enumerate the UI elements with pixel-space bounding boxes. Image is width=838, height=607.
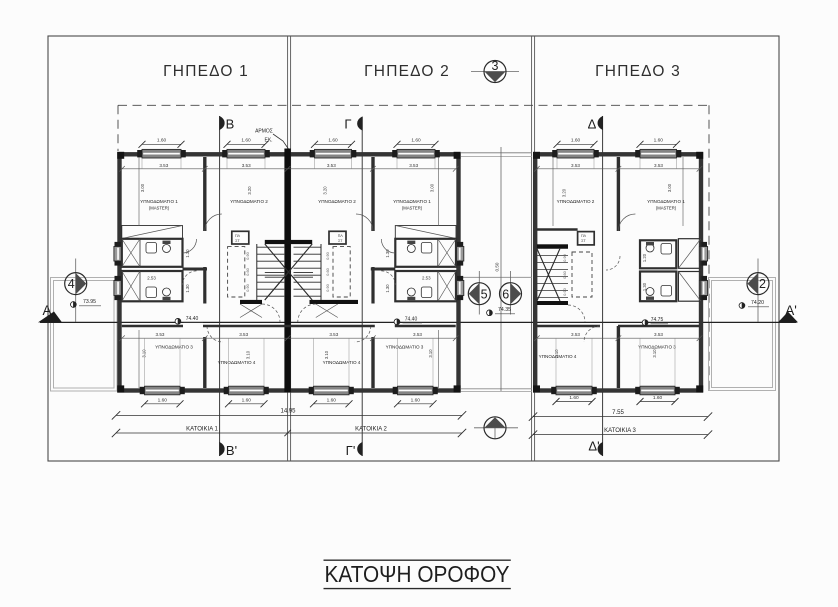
svg-text:ΓΗΠΕΔΟ 3: ΓΗΠΕΔΟ 3: [595, 63, 681, 80]
svg-text:3.53: 3.53: [327, 163, 336, 168]
svg-text:0.90: 0.90: [326, 252, 330, 259]
svg-text:3.53: 3.53: [239, 332, 248, 337]
svg-text:1.60: 1.60: [157, 137, 167, 143]
svg-text:0.90: 0.90: [563, 288, 567, 295]
svg-text:A': A': [785, 303, 797, 318]
svg-text:ΥΠΝΟΔΩΜΑΤΙΟ 4: ΥΠΝΟΔΩΜΑΤΙΟ 4: [323, 360, 361, 365]
svg-text:B': B': [226, 443, 237, 458]
svg-text:3.10: 3.10: [652, 349, 657, 358]
svg-text:ΥΠΝΟΔΩΜΑΤΙΟ 2: ΥΠΝΟΔΩΜΑΤΙΟ 2: [230, 199, 268, 204]
svg-text:1.60: 1.60: [569, 395, 579, 401]
svg-text:3.53: 3.53: [329, 332, 338, 337]
svg-text:1.60: 1.60: [654, 137, 664, 143]
svg-text:Δ': Δ': [588, 439, 599, 454]
svg-text:3.53: 3.53: [242, 163, 251, 168]
svg-text:6: 6: [502, 287, 509, 301]
svg-text:3.10: 3.10: [324, 350, 329, 359]
svg-text:1.60: 1.60: [653, 395, 663, 401]
svg-text:1.60: 1.60: [241, 137, 251, 143]
svg-text:2: 2: [759, 277, 766, 291]
svg-text:7.55: 7.55: [612, 410, 624, 416]
svg-text:Γ: Γ: [344, 117, 351, 132]
svg-text:ΥΠΝΟΔΩΜΑΤΙΟ 2: ΥΠΝΟΔΩΜΑΤΙΟ 2: [318, 199, 356, 204]
svg-text:B: B: [226, 117, 235, 132]
svg-text:ΥΠΝΟΔΩΜΑΤΙΟ 3: ΥΠΝΟΔΩΜΑΤΙΟ 3: [386, 345, 424, 350]
svg-text:Γ': Γ': [346, 443, 356, 458]
svg-text:3.53: 3.53: [571, 163, 580, 168]
svg-text:0.90: 0.90: [246, 252, 250, 259]
svg-text:1.60: 1.60: [411, 397, 421, 403]
svg-text:ΥΠΝΟΔΩΜΑΤΙΟ 3: ΥΠΝΟΔΩΜΑΤΙΟ 3: [155, 345, 193, 350]
svg-text:ΕΚ.: ΕΚ.: [265, 138, 273, 144]
svg-text:ΥΠΝΟΔΩΜΑΤΙΟ 1: ΥΠΝΟΔΩΜΑΤΙΟ 1: [647, 199, 685, 204]
svg-text:1.60: 1.60: [327, 397, 337, 403]
svg-text:74.35: 74.35: [498, 307, 511, 313]
svg-text:ΚΑΤΟΙΚΙΑ 3: ΚΑΤΟΙΚΙΑ 3: [604, 428, 636, 434]
svg-text:1.60: 1.60: [328, 137, 338, 143]
svg-text:3.20: 3.20: [247, 186, 252, 195]
svg-text:3.00: 3.00: [667, 183, 672, 192]
svg-text:3: 3: [492, 59, 499, 73]
svg-text:1.60: 1.60: [411, 137, 421, 143]
svg-text:3.10: 3.10: [428, 349, 433, 358]
svg-text:3.53: 3.53: [159, 163, 168, 168]
svg-text:3.53: 3.53: [413, 332, 422, 337]
svg-text:0.90: 0.90: [563, 254, 567, 261]
svg-text:3.10: 3.10: [142, 349, 147, 358]
svg-text:1.60: 1.60: [158, 397, 168, 403]
svg-text:ΥΠΝΟΔΩΜΑΤΙΟ 3: ΥΠΝΟΔΩΜΑΤΙΟ 3: [638, 345, 676, 350]
svg-text:5: 5: [481, 287, 488, 301]
svg-text:1.60: 1.60: [242, 397, 252, 403]
svg-text:A: A: [42, 303, 51, 318]
svg-text:ΠΛ: ΠΛ: [581, 234, 587, 238]
svg-text:ΠΛ: ΠΛ: [235, 234, 241, 238]
svg-text:0.50: 0.50: [495, 262, 500, 271]
svg-text:74.40: 74.40: [405, 316, 418, 322]
svg-text:74.20: 74.20: [751, 300, 764, 306]
svg-text:2.53: 2.53: [147, 275, 156, 280]
svg-text:3.00: 3.00: [140, 183, 145, 192]
svg-text:3.53: 3.53: [654, 163, 663, 168]
svg-text:3.20: 3.20: [562, 188, 567, 197]
svg-text:2.53: 2.53: [422, 275, 431, 280]
svg-text:3.53: 3.53: [156, 332, 165, 337]
svg-text:(MASTER): (MASTER): [402, 206, 423, 211]
svg-text:3.53: 3.53: [571, 332, 580, 337]
svg-text:1.30: 1.30: [185, 284, 190, 293]
svg-text:ΚΑΤΟΙΚΙΑ 1: ΚΑΤΟΙΚΙΑ 1: [186, 426, 218, 432]
svg-text:3.53: 3.53: [409, 163, 418, 168]
svg-text:3.10: 3.10: [554, 349, 559, 358]
svg-text:1.30: 1.30: [642, 282, 647, 291]
svg-text:ΚΑΤΟΨΗ ΟΡΟΦΟΥ: ΚΑΤΟΨΗ ΟΡΟΦΟΥ: [325, 561, 510, 587]
svg-text:ΠΛ: ΠΛ: [338, 234, 344, 238]
svg-text:1.30: 1.30: [185, 249, 190, 258]
svg-text:ΥΠΝΟΔΩΜΑΤΙΟ 1: ΥΠΝΟΔΩΜΑΤΙΟ 1: [393, 199, 431, 204]
svg-text:ΑΡΜΟΣ: ΑΡΜΟΣ: [255, 129, 273, 135]
svg-text:1.30: 1.30: [385, 249, 390, 258]
svg-text:ΥΠΝΟΔΩΜΑΤΙΟ 1: ΥΠΝΟΔΩΜΑΤΙΟ 1: [140, 199, 178, 204]
svg-text:Δ: Δ: [588, 117, 597, 132]
svg-text:ΚΑΤΟΙΚΙΑ 2: ΚΑΤΟΙΚΙΑ 2: [355, 426, 387, 432]
svg-text:3.10: 3.10: [246, 350, 251, 359]
svg-text:0.90: 0.90: [326, 284, 330, 291]
svg-text:1.30: 1.30: [385, 284, 390, 293]
svg-text:(MASTER): (MASTER): [149, 206, 170, 211]
svg-text:3.53: 3.53: [654, 332, 663, 337]
svg-text:ΓΗΠΕΔΟ 1: ΓΗΠΕΔΟ 1: [163, 63, 249, 80]
svg-text:ΥΠΝΟΔΩΜΑΤΙΟ 2: ΥΠΝΟΔΩΜΑΤΙΟ 2: [557, 199, 595, 204]
svg-text:0.60: 0.60: [563, 271, 567, 278]
svg-text:4: 4: [68, 277, 75, 291]
svg-text:0.90: 0.90: [246, 284, 250, 291]
svg-text:74.40: 74.40: [186, 316, 199, 322]
svg-text:1.20: 1.20: [642, 253, 647, 262]
svg-text:0.60: 0.60: [246, 268, 250, 275]
svg-text:ΓΗΠΕΔΟ 2: ΓΗΠΕΔΟ 2: [364, 63, 450, 80]
svg-text:3.00: 3.00: [430, 183, 435, 192]
svg-text:14.95: 14.95: [280, 409, 296, 415]
svg-text:3.20: 3.20: [323, 186, 328, 195]
svg-text:74.75: 74.75: [651, 317, 664, 323]
svg-text:(MASTER): (MASTER): [656, 206, 677, 211]
svg-text:ΥΠΝΟΔΩΜΑΤΙΟ 4: ΥΠΝΟΔΩΜΑΤΙΟ 4: [218, 360, 256, 365]
svg-text:1.60: 1.60: [571, 137, 581, 143]
svg-text:0.60: 0.60: [326, 268, 330, 275]
svg-text:73.95: 73.95: [83, 299, 96, 305]
